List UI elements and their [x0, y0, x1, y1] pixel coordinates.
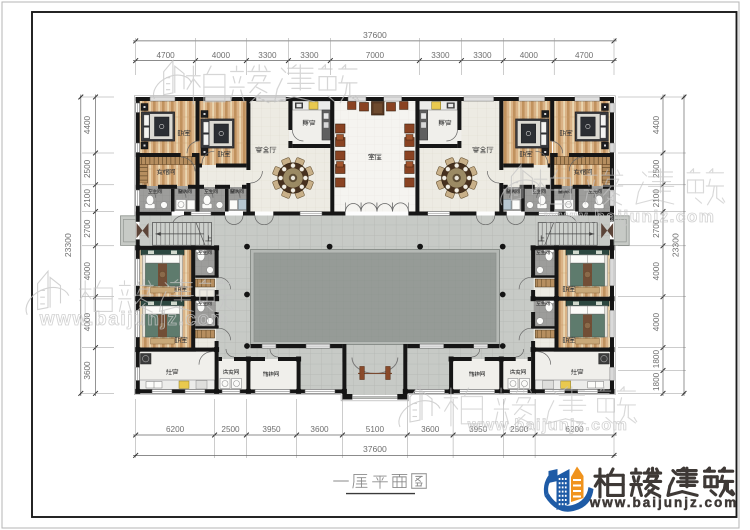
svg-text:3300: 3300	[473, 51, 492, 60]
svg-text:4400: 4400	[83, 115, 92, 134]
svg-text:3600: 3600	[83, 361, 92, 380]
svg-text:4000: 4000	[520, 51, 539, 60]
svg-text:3300: 3300	[258, 51, 277, 60]
svg-text:3600: 3600	[310, 425, 329, 434]
svg-text:4000: 4000	[212, 51, 231, 60]
svg-text:1800: 1800	[652, 372, 661, 391]
svg-text:4700: 4700	[575, 51, 594, 60]
svg-text:4700: 4700	[156, 51, 175, 60]
svg-text:1800: 1800	[652, 350, 661, 369]
svg-text:4000: 4000	[652, 262, 661, 281]
svg-text:2500: 2500	[83, 159, 92, 178]
svg-text:4000: 4000	[83, 262, 92, 281]
svg-text:37600: 37600	[363, 30, 387, 40]
svg-text:3300: 3300	[300, 51, 319, 60]
svg-text:4000: 4000	[652, 313, 661, 332]
svg-text:2700: 2700	[83, 219, 92, 238]
svg-text:www.baijunjz.com: www.baijunjz.com	[544, 207, 716, 226]
svg-text:www.baijunjz.com: www.baijunjz.com	[467, 417, 629, 434]
svg-text:6200: 6200	[166, 425, 185, 434]
svg-text:5100: 5100	[366, 425, 385, 434]
svg-text:7000: 7000	[366, 51, 385, 60]
svg-text:3950: 3950	[262, 425, 281, 434]
svg-text:www.baijunjz.com: www.baijunjz.com	[589, 495, 739, 510]
svg-text:23300: 23300	[671, 233, 681, 257]
svg-text:2100: 2100	[83, 189, 92, 208]
svg-text:4400: 4400	[652, 115, 661, 134]
svg-text:3600: 3600	[421, 425, 440, 434]
svg-text:23300: 23300	[63, 233, 73, 257]
svg-text:37600: 37600	[363, 444, 387, 454]
svg-text:3300: 3300	[431, 51, 450, 60]
svg-text:www.baijunjz.com: www.baijunjz.com	[39, 309, 230, 330]
svg-text:2500: 2500	[221, 425, 240, 434]
